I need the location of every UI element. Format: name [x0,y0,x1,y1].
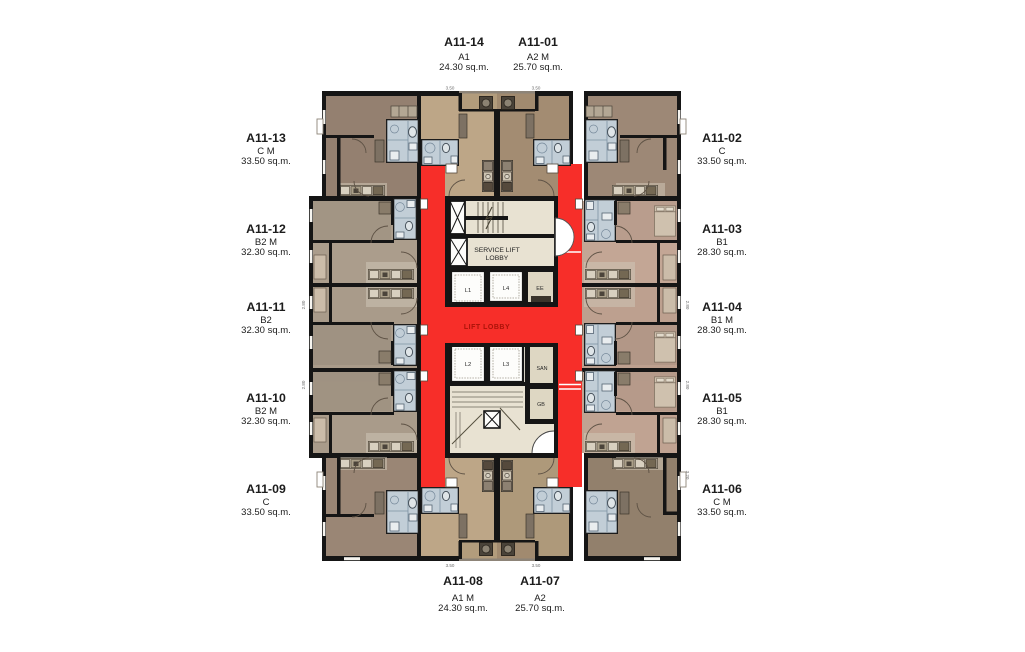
svg-text:33.50 sq.m.: 33.50 sq.m. [697,156,747,167]
svg-text:28.30 sq.m.: 28.30 sq.m. [697,416,747,427]
svg-text:24.30 sq.m.: 24.30 sq.m. [439,62,489,73]
svg-text:A11-10: A11-10 [246,391,286,405]
svg-text:28.30 sq.m.: 28.30 sq.m. [697,247,747,258]
svg-text:3.20: 3.20 [685,471,690,480]
svg-text:A11-06: A11-06 [702,482,742,496]
svg-text:32.30 sq.m.: 32.30 sq.m. [241,325,291,336]
svg-text:L4: L4 [503,286,510,292]
svg-text:2.80: 2.80 [301,300,306,309]
svg-text:32.30 sq.m.: 32.30 sq.m. [241,416,291,427]
svg-text:LOBBY: LOBBY [486,255,509,262]
svg-text:32.30 sq.m.: 32.30 sq.m. [241,247,291,258]
svg-text:28.30 sq.m.: 28.30 sq.m. [697,325,747,336]
svg-text:25.70 sq.m.: 25.70 sq.m. [515,603,565,614]
svg-text:24.30 sq.m.: 24.30 sq.m. [438,603,488,614]
svg-text:33.50 sq.m.: 33.50 sq.m. [241,156,291,167]
svg-text:A11-08: A11-08 [443,574,483,588]
svg-text:3.50: 3.50 [532,563,541,568]
svg-text:A11-05: A11-05 [702,391,742,405]
svg-text:3.50: 3.50 [446,563,455,568]
svg-text:33.50 sq.m.: 33.50 sq.m. [697,507,747,518]
svg-text:A11-13: A11-13 [246,131,286,145]
svg-text:25.70 sq.m.: 25.70 sq.m. [513,62,563,73]
svg-text:GB: GB [537,402,545,408]
svg-text:LIFT LOBBY: LIFT LOBBY [464,324,510,331]
svg-text:EE: EE [536,286,544,292]
svg-text:3.50: 3.50 [446,86,455,91]
svg-text:A11-07: A11-07 [520,574,560,588]
svg-text:A11-03: A11-03 [702,222,742,236]
svg-text:2.80: 2.80 [685,381,690,390]
svg-text:A11-11: A11-11 [247,300,286,314]
svg-text:SERVICE LIFT: SERVICE LIFT [474,247,520,254]
svg-text:2.80: 2.80 [685,301,690,310]
svg-text:A11-01: A11-01 [518,35,558,49]
svg-text:33.50 sq.m.: 33.50 sq.m. [241,507,291,518]
svg-text:2.80: 2.80 [301,380,306,389]
svg-text:SAN: SAN [536,366,547,372]
svg-text:L3: L3 [503,362,509,368]
svg-text:L1: L1 [465,288,471,294]
svg-text:3.50: 3.50 [532,86,541,91]
svg-text:A11-09: A11-09 [246,482,286,496]
svg-text:A11-12: A11-12 [246,222,286,236]
svg-text:A11-04: A11-04 [702,300,742,314]
svg-text:A11-02: A11-02 [702,131,742,145]
svg-text:L2: L2 [465,362,471,368]
svg-text:A11-14: A11-14 [444,35,484,49]
